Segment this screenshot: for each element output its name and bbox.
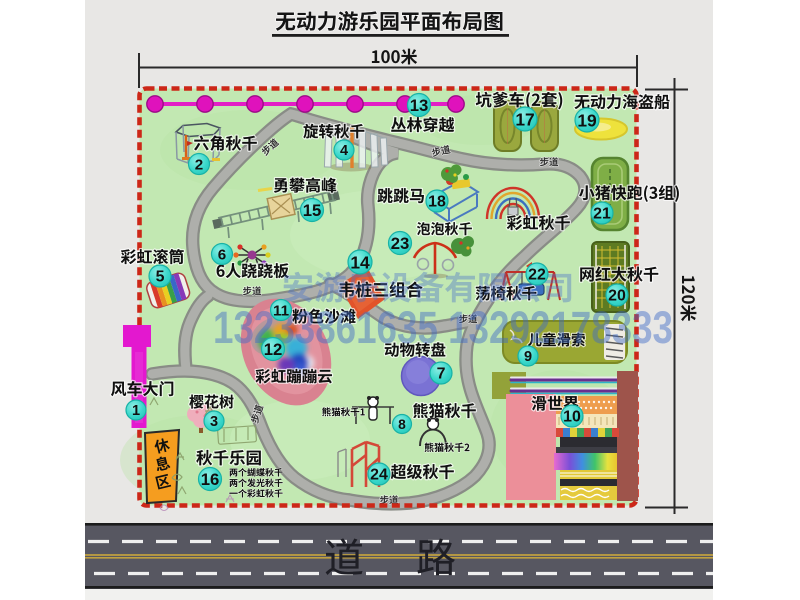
svg-text:6: 6 <box>218 246 226 263</box>
svg-text:23: 23 <box>391 234 410 253</box>
svg-text:5: 5 <box>156 269 165 286</box>
svg-text:22: 22 <box>528 267 546 284</box>
svg-text:24: 24 <box>370 467 388 484</box>
svg-text:17: 17 <box>515 109 534 129</box>
svg-text:8: 8 <box>398 417 406 432</box>
svg-text:4: 4 <box>340 143 348 159</box>
svg-text:21: 21 <box>593 206 611 223</box>
svg-text:7: 7 <box>437 366 446 383</box>
svg-text:14: 14 <box>350 252 370 272</box>
svg-text:10: 10 <box>563 409 581 426</box>
svg-text:11: 11 <box>273 302 290 319</box>
svg-text:12: 12 <box>264 340 283 359</box>
svg-text:16: 16 <box>201 470 220 489</box>
svg-text:3: 3 <box>210 414 218 430</box>
svg-text:2: 2 <box>195 156 203 173</box>
svg-text:19: 19 <box>577 110 597 130</box>
svg-text:9: 9 <box>524 349 532 365</box>
svg-text:18: 18 <box>428 194 446 211</box>
svg-text:20: 20 <box>608 288 626 305</box>
svg-text:13: 13 <box>410 96 429 115</box>
svg-text:1: 1 <box>132 403 140 419</box>
svg-text:15: 15 <box>303 201 322 220</box>
